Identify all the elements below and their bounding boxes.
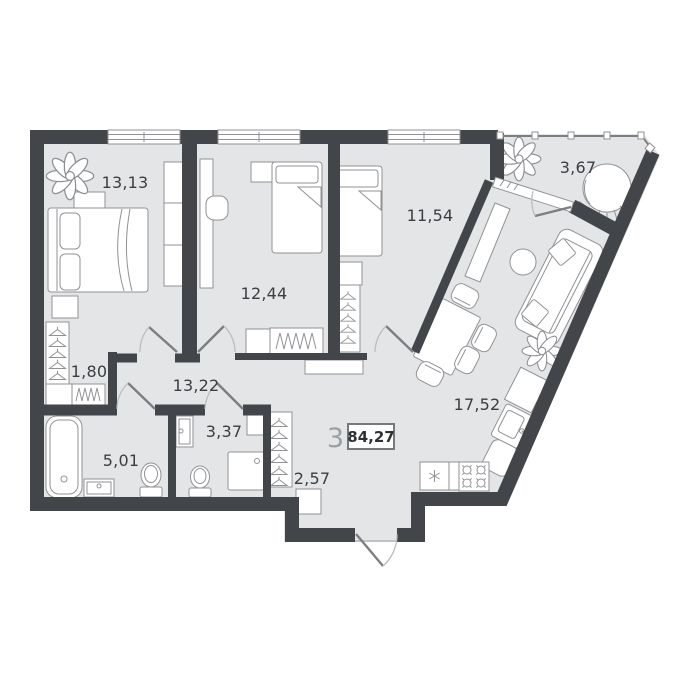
shelf [251,162,275,182]
area-label-bathroom: 5,01 [103,451,139,470]
bathtub [46,416,82,498]
shoe-cabinet [296,489,321,514]
hallway-cabinet [305,360,363,374]
shelf-unit [46,384,72,405]
nightstand [52,296,78,318]
desk [200,159,213,288]
area-label-balcony: 3,67 [560,158,596,177]
plant-icon [46,152,94,200]
cabinet [246,329,270,355]
washing-machine [228,452,264,490]
hanger-rail [46,322,69,384]
area-label-kitchen-living: 17,52 [454,395,501,414]
wardrobe [164,162,185,286]
area-label-hallway: 13,22 [173,376,220,395]
total-area-value: 84,27 [347,428,394,446]
area-label-entry: 2,57 [294,469,330,488]
pillow [60,254,80,290]
pillow [60,213,80,249]
floor-plan: 13,13 12,44 11,54 3,67 1,80 13,22 5,01 3… [0,0,700,700]
toilet-tank [189,488,211,497]
floor-plan-canvas: 13,13 12,44 11,54 3,67 1,80 13,22 5,01 3… [0,0,700,700]
coffee-table [510,249,536,275]
toilet [191,466,210,488]
desk-chair [206,196,228,220]
window [108,130,180,144]
area-label-closet: 1,80 [71,362,107,381]
area-label-wc: 3,37 [206,422,242,441]
toilet-tank [140,487,162,497]
rooms-count: 3 [327,423,344,454]
summary-badge: 3 84,27 [327,423,395,454]
window [218,130,300,144]
windows [108,130,460,144]
toilet [141,463,161,487]
area-label-bedroom1: 13,13 [102,173,149,192]
area-label-bedroom3: 11,54 [407,206,454,225]
dresser [72,384,105,405]
area-label-bedroom2: 12,44 [241,284,288,303]
window [388,130,460,144]
narrow-cabinet [449,462,459,490]
pillow [276,166,318,183]
pillow [338,170,378,187]
